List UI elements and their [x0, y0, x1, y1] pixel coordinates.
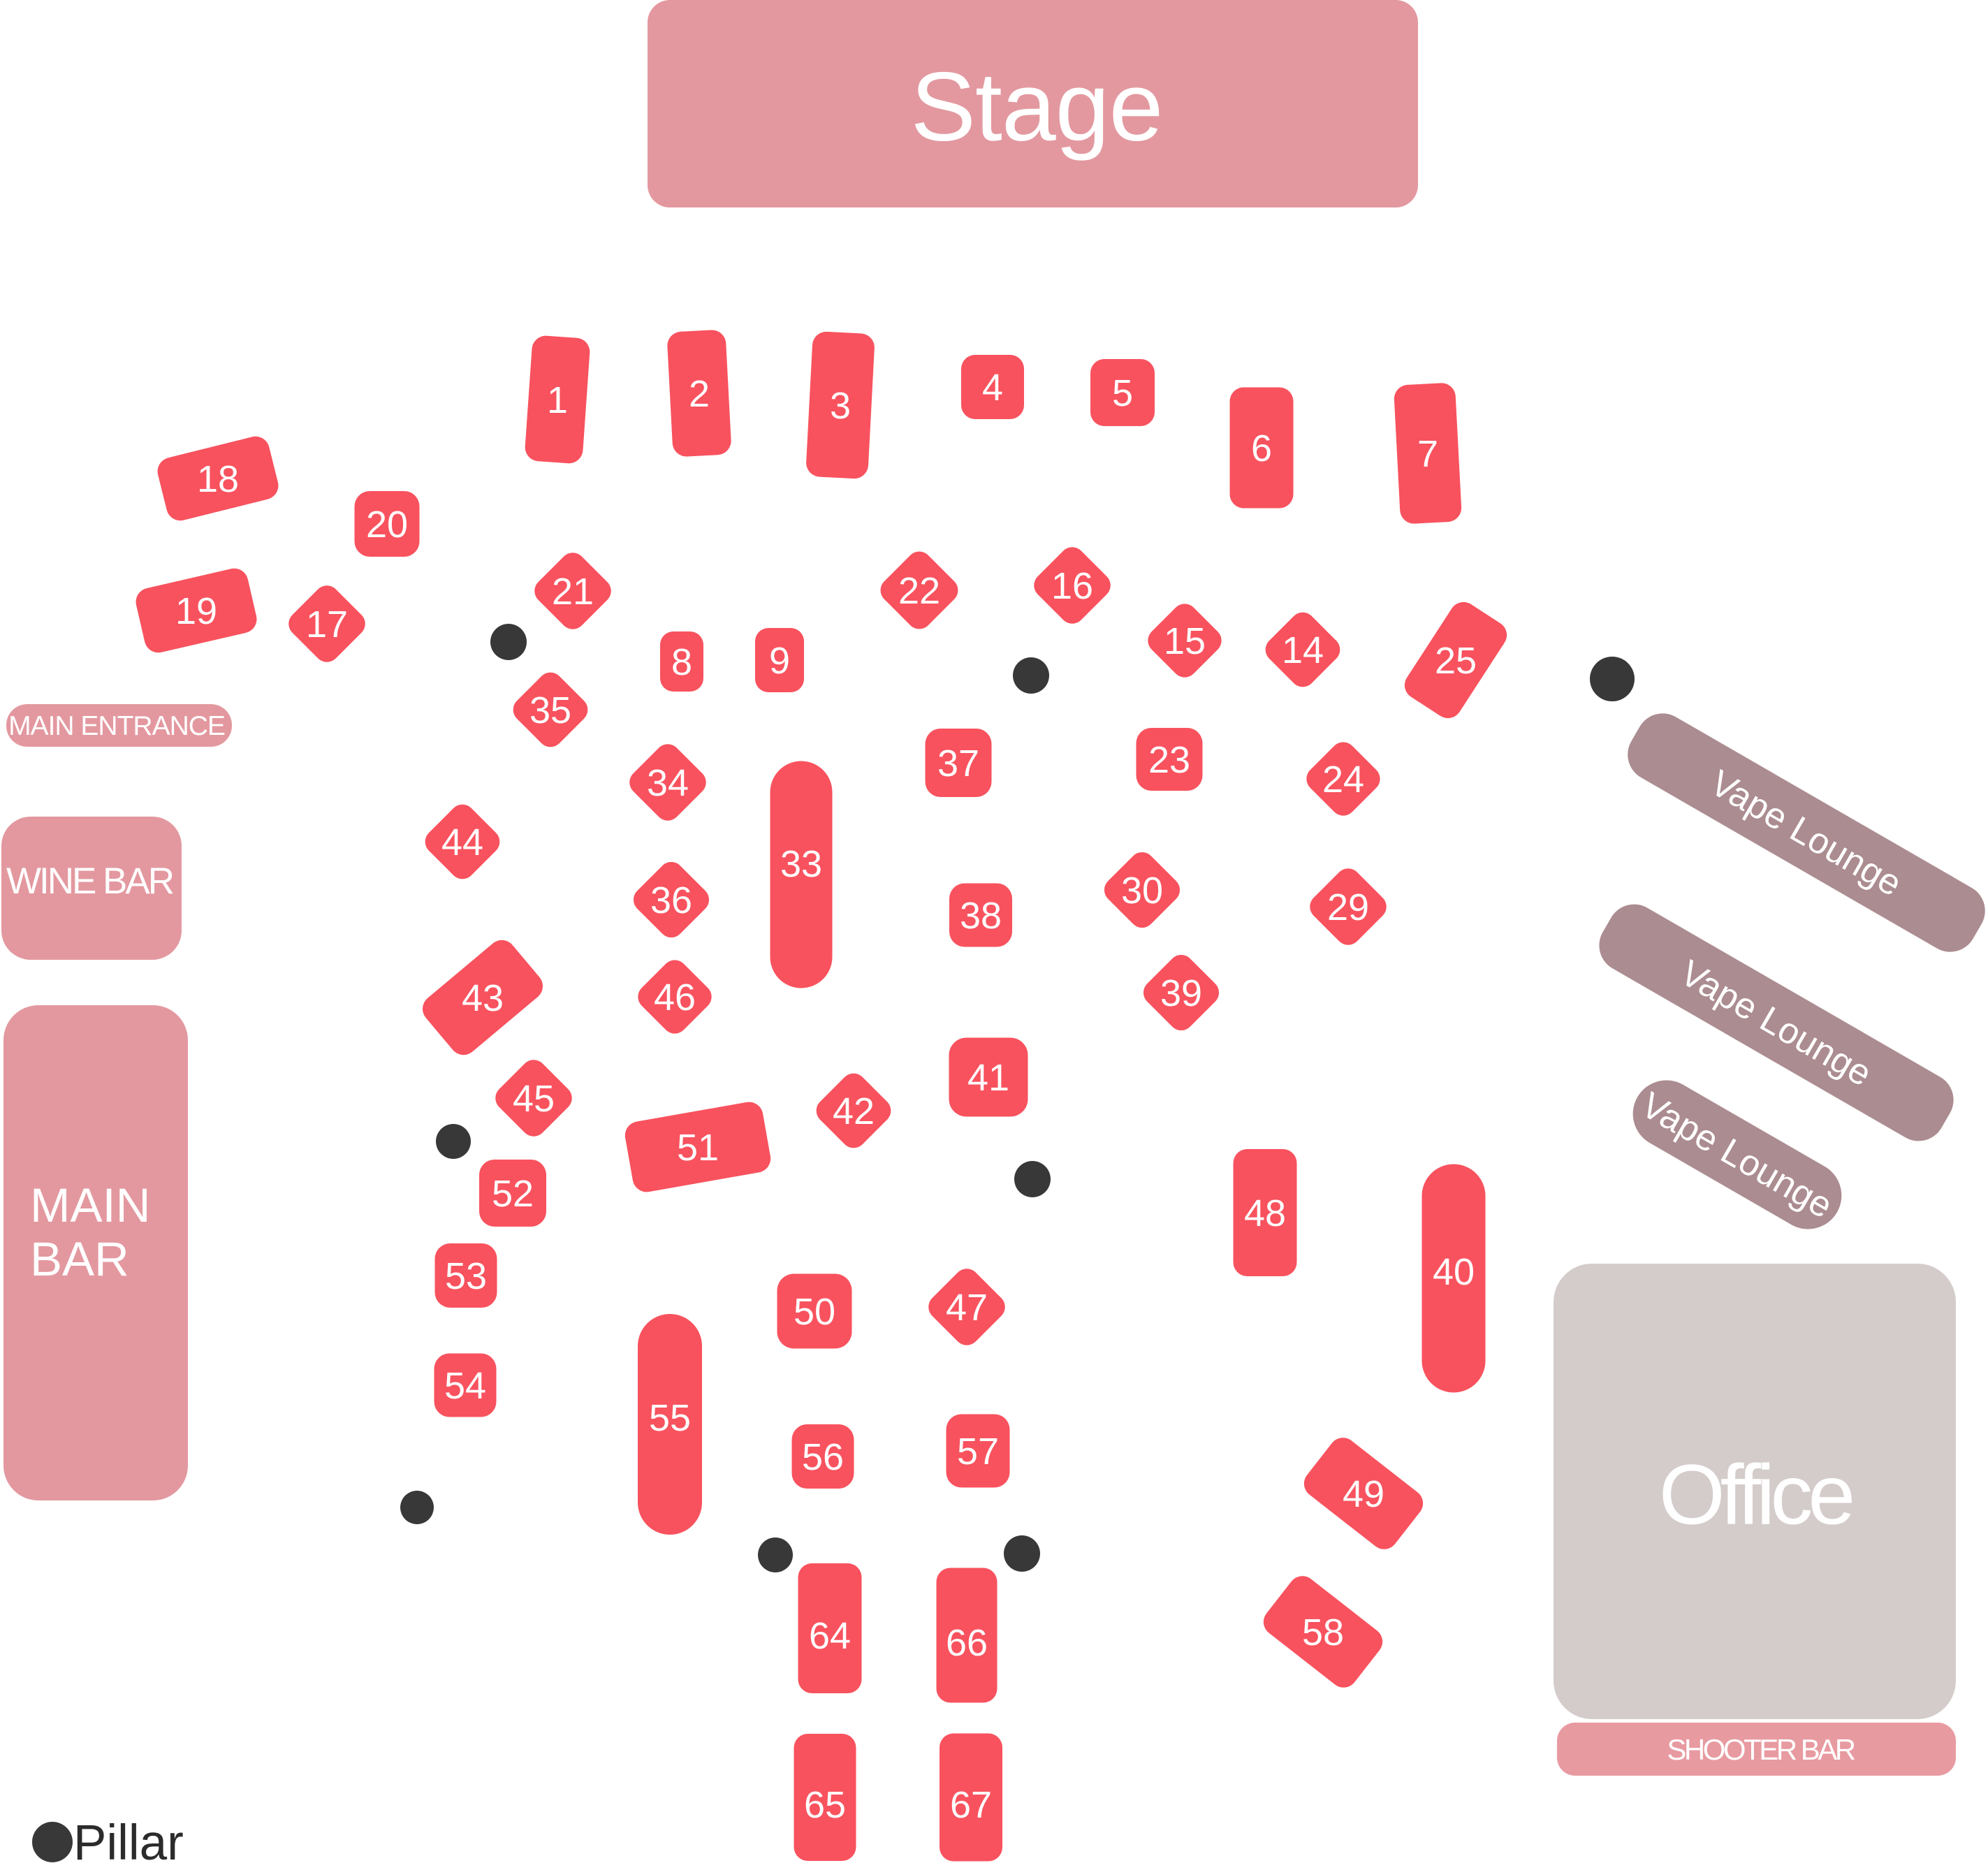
- svg-text:39: 39: [1160, 972, 1202, 1014]
- svg-text:Pillar: Pillar: [73, 1815, 184, 1863]
- svg-text:64: 64: [809, 1615, 851, 1657]
- svg-text:MAIN: MAIN: [30, 1178, 151, 1232]
- svg-text:47: 47: [946, 1287, 988, 1329]
- svg-text:Stage: Stage: [911, 52, 1163, 161]
- svg-text:35: 35: [529, 689, 571, 731]
- svg-text:15: 15: [1164, 620, 1206, 662]
- svg-text:48: 48: [1244, 1192, 1286, 1234]
- svg-text:38: 38: [960, 895, 1002, 937]
- svg-text:34: 34: [647, 762, 689, 804]
- svg-text:21: 21: [552, 571, 594, 613]
- svg-text:55: 55: [649, 1397, 691, 1439]
- svg-text:14: 14: [1282, 629, 1324, 671]
- svg-text:53: 53: [445, 1255, 487, 1297]
- svg-text:67: 67: [950, 1784, 992, 1826]
- svg-text:36: 36: [650, 879, 692, 921]
- svg-text:42: 42: [833, 1090, 875, 1132]
- svg-text:7: 7: [1417, 433, 1438, 475]
- svg-text:8: 8: [671, 641, 692, 683]
- svg-text:65: 65: [804, 1784, 846, 1826]
- svg-text:57: 57: [957, 1431, 999, 1473]
- svg-text:46: 46: [654, 977, 696, 1018]
- svg-text:9: 9: [769, 640, 790, 682]
- svg-text:44: 44: [441, 821, 483, 863]
- svg-text:58: 58: [1302, 1612, 1344, 1653]
- svg-text:22: 22: [898, 570, 940, 612]
- svg-text:54: 54: [444, 1365, 486, 1407]
- svg-text:25: 25: [1435, 640, 1477, 682]
- svg-text:33: 33: [780, 843, 822, 885]
- svg-text:30: 30: [1121, 870, 1163, 912]
- svg-text:52: 52: [492, 1173, 534, 1215]
- svg-text:3: 3: [830, 385, 851, 427]
- svg-text:Office: Office: [1659, 1447, 1852, 1542]
- svg-text:45: 45: [513, 1078, 555, 1120]
- svg-text:51: 51: [677, 1127, 719, 1169]
- svg-text:4: 4: [982, 367, 1003, 409]
- svg-text:18: 18: [197, 458, 239, 500]
- svg-text:5: 5: [1112, 372, 1133, 414]
- svg-text:6: 6: [1251, 428, 1272, 469]
- svg-text:Vape Lounge: Vape Lounge: [1634, 1085, 1839, 1227]
- svg-text:56: 56: [802, 1436, 844, 1478]
- svg-text:41: 41: [967, 1057, 1009, 1099]
- svg-text:66: 66: [946, 1622, 988, 1664]
- svg-text:SHOOTER BAR: SHOOTER BAR: [1667, 1733, 1855, 1766]
- svg-text:19: 19: [175, 590, 217, 632]
- svg-text:BAR: BAR: [30, 1232, 129, 1286]
- svg-text:20: 20: [366, 504, 408, 546]
- svg-text:43: 43: [462, 977, 504, 1019]
- svg-text:49: 49: [1343, 1473, 1384, 1515]
- svg-text:16: 16: [1051, 565, 1093, 607]
- svg-text:50: 50: [794, 1291, 835, 1333]
- svg-text:MAIN ENTRANCE: MAIN ENTRANCE: [8, 711, 225, 741]
- svg-text:37: 37: [937, 743, 979, 784]
- svg-text:24: 24: [1322, 759, 1364, 801]
- svg-text:29: 29: [1327, 886, 1369, 928]
- svg-text:23: 23: [1148, 739, 1190, 781]
- svg-text:40: 40: [1433, 1251, 1475, 1293]
- svg-text:1: 1: [547, 379, 568, 421]
- svg-text:2: 2: [689, 373, 710, 415]
- svg-text:17: 17: [306, 604, 348, 645]
- svg-text:WINE BAR: WINE BAR: [6, 861, 173, 902]
